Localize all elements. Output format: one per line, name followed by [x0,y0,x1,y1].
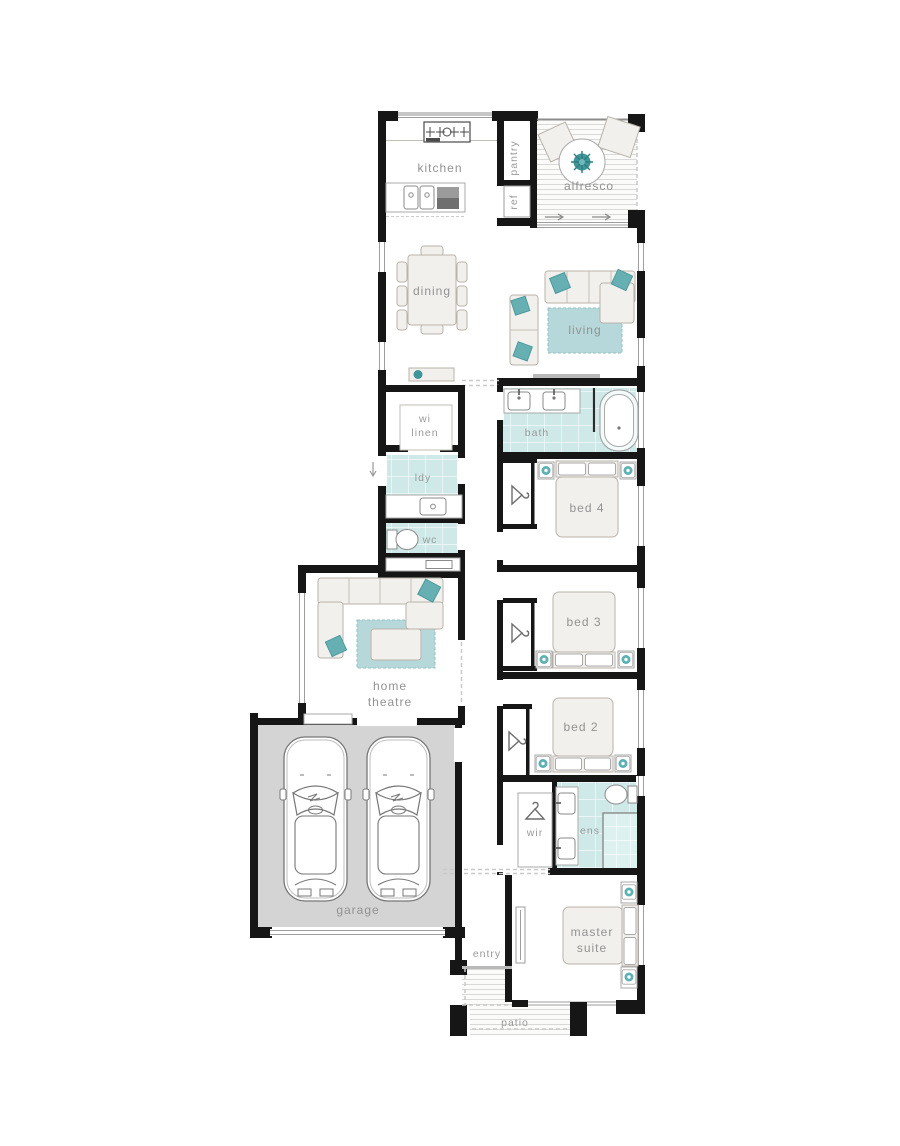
lamp-icon [621,463,635,477]
lamp-icon [622,970,636,984]
room-entry: entry [473,948,501,960]
room-bed3: bed 3 [512,592,634,668]
room-label-home-theatre-2: theatre [368,695,412,709]
dining-chairs-right [457,262,467,330]
console-table [409,368,454,381]
ottoman [371,629,421,660]
room-label-wir: wir [526,827,543,839]
hanger-icon [509,732,526,750]
room-label-living: living [568,323,601,337]
shower-icon [603,813,637,868]
porch-decking [462,968,512,1005]
room-label-bath: bath [525,427,549,439]
room-label-home-theatre-1: home [373,679,407,693]
plant-icon [571,151,593,173]
room-pantry: pantry [508,140,520,175]
laundry-sink-icon [420,498,446,515]
dining-chairs-left [397,262,407,330]
living-sofa-2 [510,295,538,365]
basin-icon [543,389,565,410]
room-master-suite: master suite [516,882,638,988]
room-label-bed4: bed 4 [569,501,604,515]
lamp-icon [536,756,550,770]
room-label-ldy: ldy [415,472,431,484]
floor-plan-page: kitchen pantry ref alfresco [0,0,900,1146]
toilet-icon [605,785,637,804]
room-label-ref: ref [508,194,520,209]
room-label-entry: entry [473,948,501,960]
plant-icon [414,370,423,379]
lamp-icon [616,756,630,770]
room-label-alfresco: alfresco [564,179,614,193]
floor-plan-canvas: kitchen pantry ref alfresco [0,0,900,1146]
room-label-garage: garage [336,903,379,917]
lamp-icon [622,885,636,899]
fridge-space: ref [504,186,530,217]
car-icon [280,737,351,901]
bed-icon [556,461,618,537]
room-label-wi-linen-2: linen [411,427,438,439]
room-patio: patio [501,1017,529,1029]
bed-icon [553,592,615,668]
room-wi-linen: wi linen [400,405,452,450]
bed-icon [553,698,613,772]
room-label-bed2: bed 2 [563,720,598,734]
lamp-icon [539,463,553,477]
hanger-icon [512,624,529,642]
cooktop-icon [424,122,470,142]
toilet-icon [387,530,418,550]
basin-icon [556,793,575,814]
basin-icon [556,838,575,859]
basin-icon [508,389,530,410]
room-label-wc: wc [422,534,438,546]
room-living: living [510,269,635,365]
room-label-patio: patio [501,1017,529,1029]
room-label-pantry: pantry [508,140,520,175]
room-dining: dining [397,246,467,381]
room-label-wi-linen-1: wi [418,413,431,425]
room-label-master-2: suite [577,941,607,955]
hanger-icon [512,486,529,504]
room-label-kitchen: kitchen [417,161,462,175]
lamp-icon [619,652,633,666]
room-kitchen: kitchen [386,122,497,217]
car-icon [363,737,434,901]
bathtub-icon [600,390,638,451]
lamp-icon [537,652,551,666]
room-label-dining: dining [413,284,451,298]
room-home-theatre: home theatre [318,578,443,709]
room-label-bed3: bed 3 [566,615,601,629]
external-door-arrow-icon [370,462,376,476]
room-label-master-1: master [571,925,614,939]
kitchen-island [386,183,465,217]
room-wir: wir [518,793,552,867]
room-label-ens: ens [580,825,600,837]
